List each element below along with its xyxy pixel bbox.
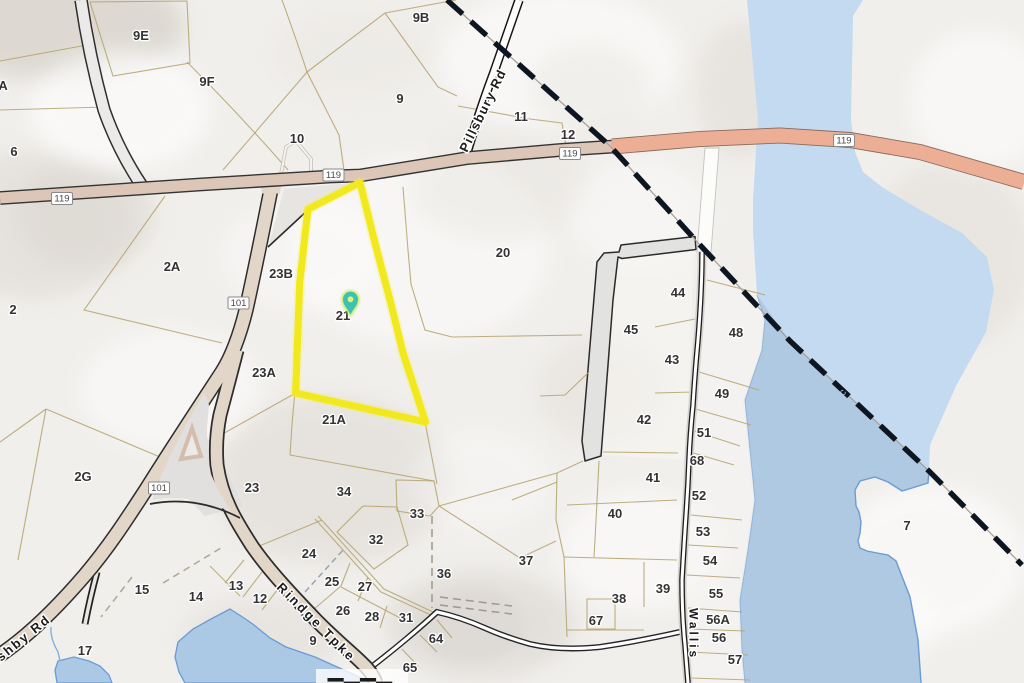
svg-text:9E: 9E <box>133 28 149 43</box>
svg-text:37: 37 <box>519 553 533 568</box>
svg-text:67: 67 <box>589 613 603 628</box>
svg-text:36: 36 <box>437 566 451 581</box>
svg-text:2G: 2G <box>74 469 91 484</box>
svg-text:55: 55 <box>709 586 723 601</box>
svg-text:119: 119 <box>562 149 577 160</box>
svg-text:56: 56 <box>712 630 726 645</box>
svg-text:9: 9 <box>309 633 316 648</box>
svg-text:26: 26 <box>336 603 350 618</box>
svg-text:10: 10 <box>290 131 304 146</box>
svg-text:13: 13 <box>229 578 243 593</box>
svg-text:56A: 56A <box>706 612 730 627</box>
svg-text:23B: 23B <box>269 266 293 281</box>
svg-text:17: 17 <box>78 643 92 658</box>
svg-text:40: 40 <box>608 506 622 521</box>
svg-text:38: 38 <box>612 591 626 606</box>
svg-text:15: 15 <box>135 582 149 597</box>
svg-text:101: 101 <box>151 483 167 494</box>
svg-text:41: 41 <box>646 470 660 485</box>
svg-text:49: 49 <box>715 386 729 401</box>
svg-text:9: 9 <box>396 91 403 106</box>
svg-text:23A: 23A <box>252 365 276 380</box>
svg-text:119: 119 <box>54 194 69 205</box>
svg-text:21A: 21A <box>322 412 346 427</box>
svg-text:24: 24 <box>302 546 317 561</box>
svg-text:44: 44 <box>671 285 686 300</box>
svg-text:34: 34 <box>337 484 352 499</box>
svg-text:20: 20 <box>496 245 510 260</box>
svg-text:7: 7 <box>903 518 910 533</box>
svg-text:33: 33 <box>410 506 424 521</box>
svg-text:53: 53 <box>696 524 710 539</box>
svg-text:2: 2 <box>9 302 16 317</box>
svg-text:31: 31 <box>399 610 413 625</box>
svg-text:11: 11 <box>514 109 528 124</box>
svg-text:65: 65 <box>403 660 417 675</box>
svg-text:43: 43 <box>665 352 679 367</box>
svg-text:27: 27 <box>358 579 372 594</box>
svg-text:42: 42 <box>637 412 651 427</box>
svg-text:25: 25 <box>325 574 339 589</box>
svg-text:12: 12 <box>561 127 575 142</box>
svg-text:9B: 9B <box>413 10 430 25</box>
svg-text:57: 57 <box>728 652 742 667</box>
svg-text:2A: 2A <box>164 259 181 274</box>
svg-text:28: 28 <box>365 609 379 624</box>
svg-text:45: 45 <box>624 322 638 337</box>
svg-text:119: 119 <box>836 136 851 147</box>
svg-text:48: 48 <box>729 325 743 340</box>
svg-text:51: 51 <box>697 425 711 440</box>
svg-text:9F: 9F <box>199 74 214 89</box>
svg-text:A: A <box>0 78 8 93</box>
svg-text:52: 52 <box>692 488 706 503</box>
svg-text:6: 6 <box>10 144 17 159</box>
svg-text:101: 101 <box>231 298 247 309</box>
svg-text:Wallis: Wallis <box>687 608 701 660</box>
svg-text:54: 54 <box>703 553 718 568</box>
svg-text:14: 14 <box>189 589 204 604</box>
svg-text:64: 64 <box>429 631 444 646</box>
svg-text:23: 23 <box>245 480 259 495</box>
svg-text:39: 39 <box>656 581 670 596</box>
svg-text:12: 12 <box>253 591 267 606</box>
svg-text:32: 32 <box>369 532 383 547</box>
svg-text:119: 119 <box>326 170 341 181</box>
svg-text:68: 68 <box>690 453 704 468</box>
